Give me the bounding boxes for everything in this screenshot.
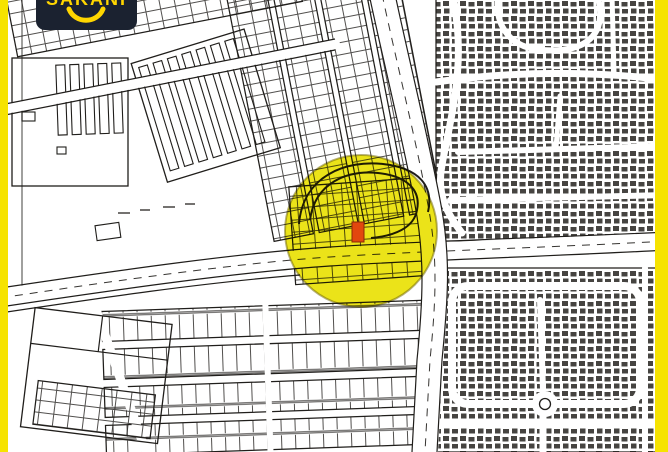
- frame-right: [655, 0, 668, 452]
- frame-left: [0, 0, 8, 452]
- highlight-overlay: [285, 155, 437, 307]
- dense-urban-northeast: [436, 0, 668, 241]
- smile-icon: [64, 6, 108, 28]
- dense-urban-southeast: [436, 268, 668, 452]
- selected-parcel-marker[interactable]: [352, 222, 364, 242]
- roundabout: [532, 391, 558, 417]
- cadastral-map-canvas[interactable]: [0, 0, 668, 452]
- sakani-logo: SAKANI: [36, 0, 137, 30]
- map-viewport[interactable]: SAKANI: [0, 0, 668, 452]
